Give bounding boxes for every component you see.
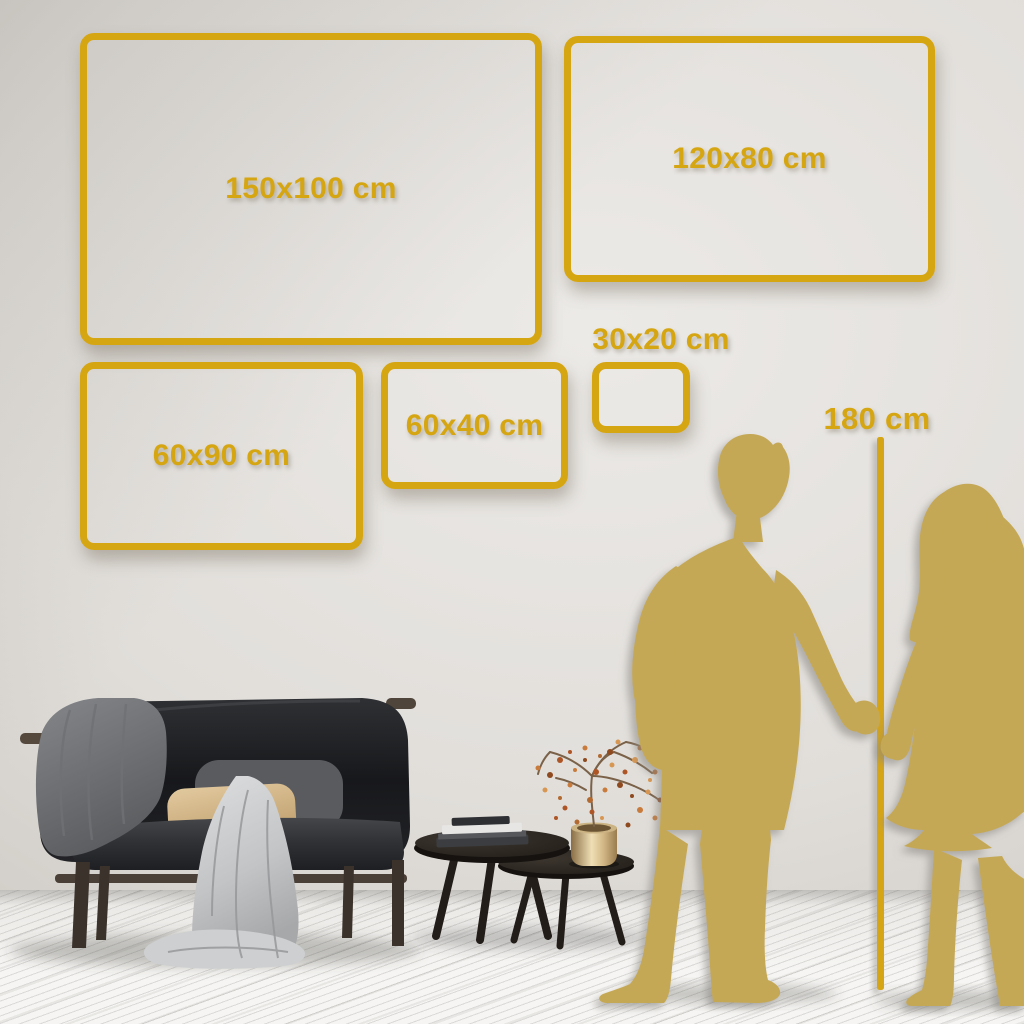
wall-art-size-guide-scene: 150x100 cm 120x80 cm 60x90 cm 60x40 cm 3… — [0, 0, 1024, 1024]
wood-floor — [0, 890, 1024, 1024]
size-frame-30x20 — [592, 362, 690, 433]
size-label-30x20: 30x20 cm — [584, 323, 738, 357]
height-marker-label: 180 cm — [812, 401, 942, 437]
size-label-60x40: 60x40 cm — [406, 409, 544, 443]
size-frame-60x90: 60x90 cm — [80, 362, 363, 550]
size-label-60x90: 60x90 cm — [153, 439, 291, 473]
size-frame-150x100: 150x100 cm — [80, 33, 542, 345]
size-frame-120x80: 120x80 cm — [564, 36, 935, 282]
size-label-150x100: 150x100 cm — [225, 172, 397, 206]
size-frame-60x40: 60x40 cm — [381, 362, 568, 489]
size-label-120x80: 120x80 cm — [672, 142, 827, 176]
